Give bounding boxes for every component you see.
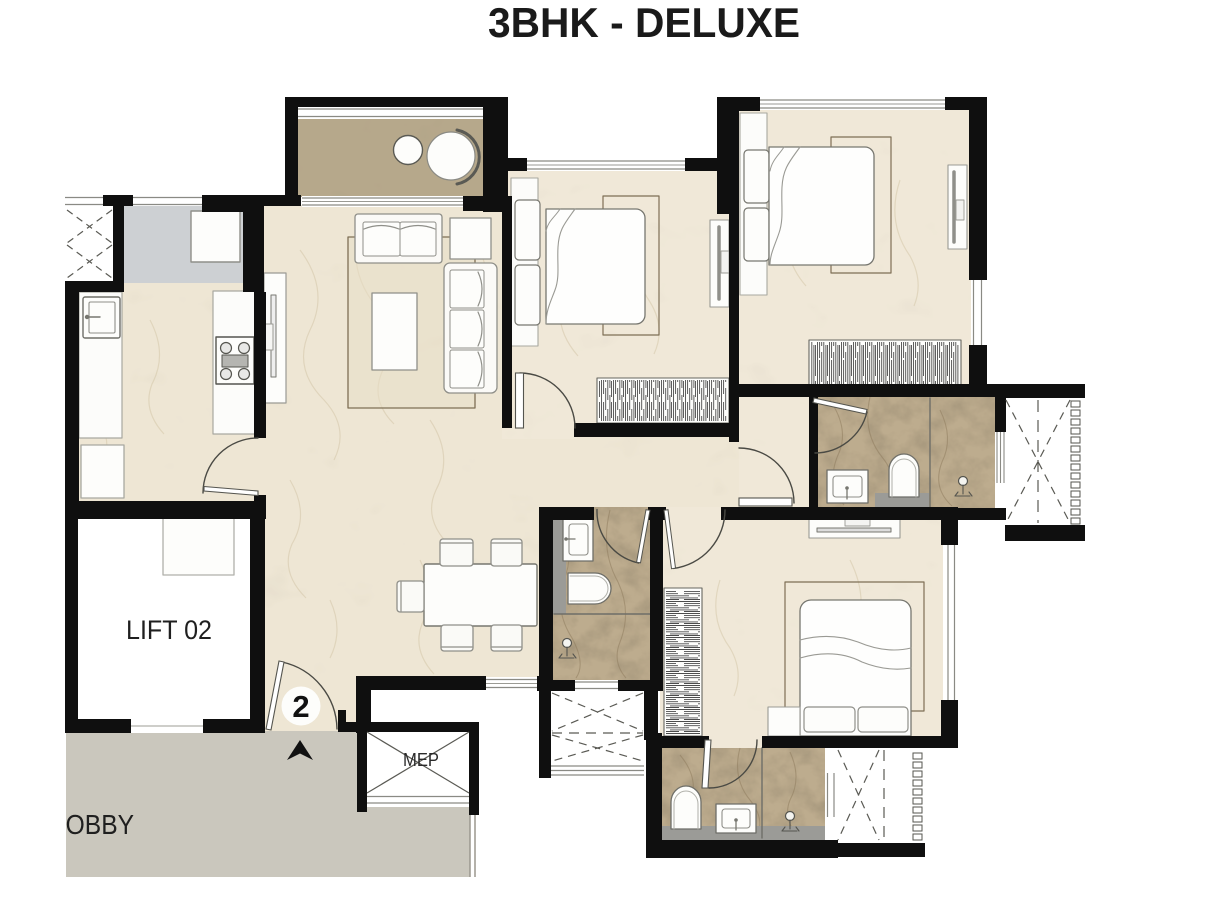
svg-text:MEP: MEP	[403, 750, 439, 770]
svg-text:3BHK - DELUXE: 3BHK - DELUXE	[488, 0, 800, 46]
svg-text:LIFT 02: LIFT 02	[126, 615, 212, 645]
svg-text:2: 2	[292, 689, 309, 724]
